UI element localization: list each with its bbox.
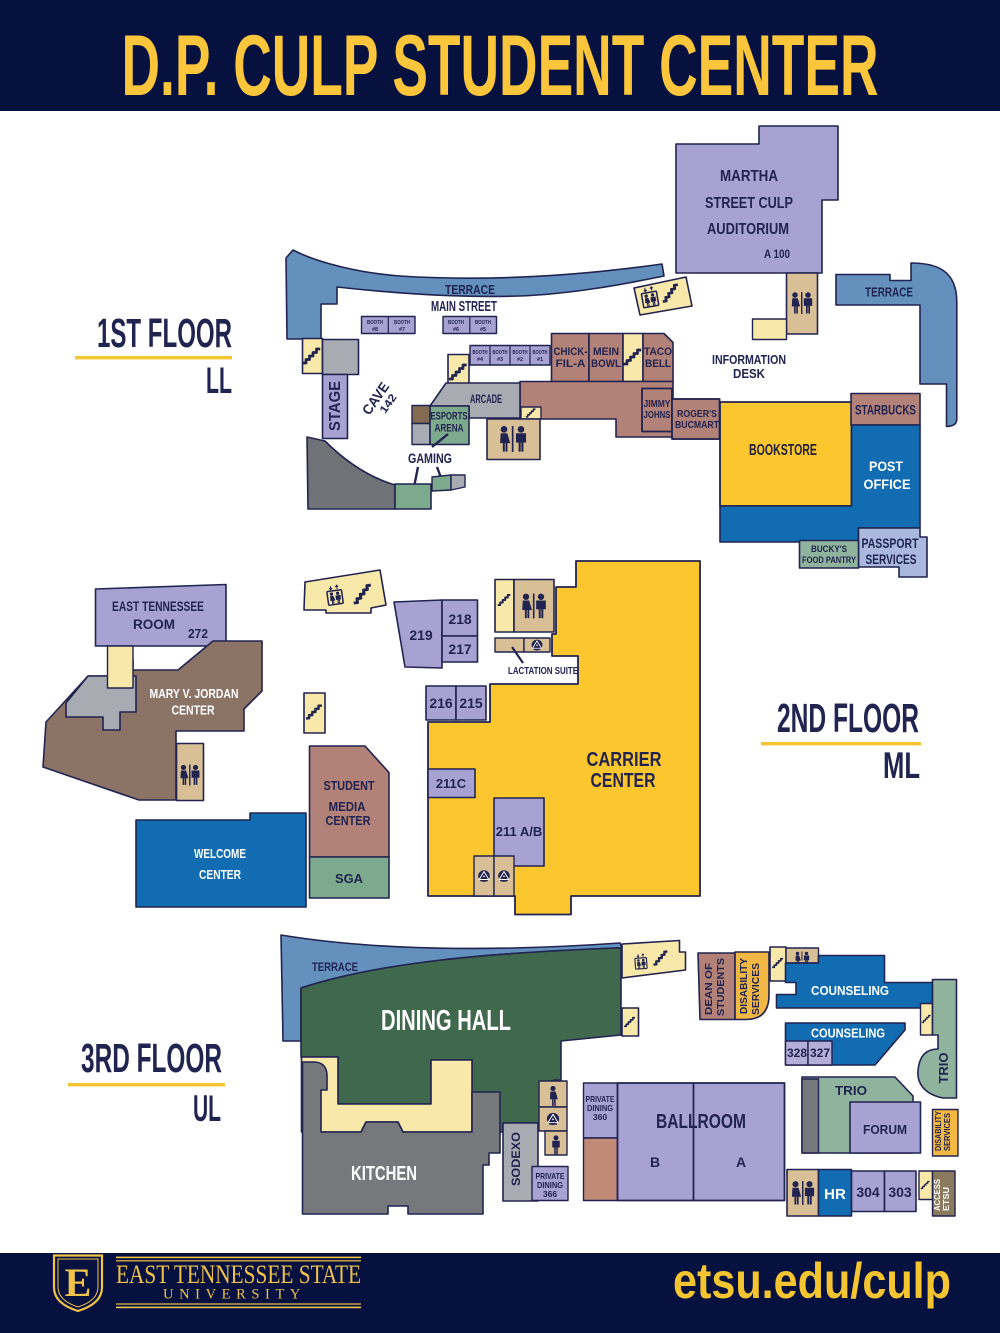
svg-text:BALLROOM: BALLROOM (656, 1111, 746, 1133)
svg-text:STAGE: STAGE (327, 381, 344, 431)
svg-text:CHICK-: CHICK- (554, 346, 588, 358)
svg-text:UL: UL (193, 1088, 221, 1129)
svg-text:EAST TENNESSEE: EAST TENNESSEE (112, 599, 204, 614)
svg-text:FOOD PANTRY: FOOD PANTRY (802, 555, 857, 566)
svg-text:CENTER: CENTER (199, 867, 241, 882)
svg-text:BOWL: BOWL (591, 358, 621, 370)
svg-text:SERVICES: SERVICES (866, 551, 917, 567)
svg-text:PASSPORT: PASSPORT (862, 535, 919, 551)
svg-text:ML: ML (883, 745, 920, 786)
svg-text:2ND FLOOR: 2ND FLOOR (777, 695, 919, 741)
svg-text:EAST TENNESSEE STATE: EAST TENNESSEE STATE (116, 1260, 361, 1289)
svg-text:LL: LL (206, 360, 232, 401)
svg-text:BUCKY'S: BUCKY'S (811, 544, 847, 555)
svg-text:TRIO: TRIO (835, 1084, 867, 1098)
svg-text:UNIVERSITY: UNIVERSITY (163, 1287, 306, 1303)
svg-text:BOOTH: BOOTH (394, 320, 410, 326)
svg-text:MAIN STREET: MAIN STREET (431, 298, 497, 315)
svg-text:211C: 211C (436, 776, 467, 791)
svg-text:COUNSELING: COUNSELING (811, 1027, 885, 1041)
svg-text:CENTER: CENTER (326, 813, 372, 828)
svg-text:SERVICES: SERVICES (942, 1113, 952, 1151)
svg-text:FORUM: FORUM (863, 1123, 907, 1137)
svg-text:217: 217 (448, 641, 472, 657)
svg-text:3RD FLOOR: 3RD FLOOR (81, 1035, 222, 1081)
svg-text:ETSU: ETSU (941, 1187, 951, 1211)
svg-text:A: A (736, 1154, 746, 1170)
svg-text:327: 327 (810, 1046, 830, 1060)
svg-text:ARCADE: ARCADE (470, 394, 502, 406)
svg-text:STUDENTS: STUDENTS (715, 958, 727, 1016)
svg-text:328: 328 (787, 1046, 807, 1060)
svg-text:MARY V. JORDAN: MARY V. JORDAN (150, 686, 239, 701)
svg-text:TERRACE: TERRACE (312, 960, 358, 974)
svg-text:ARENA: ARENA (435, 423, 464, 435)
svg-text:WELCOME: WELCOME (194, 846, 246, 861)
svg-text:216: 216 (429, 695, 453, 711)
svg-text:OFFICE: OFFICE (864, 476, 911, 492)
svg-text:TACO: TACO (644, 346, 672, 358)
svg-text:SERVICES: SERVICES (750, 963, 762, 1015)
svg-text:STREET CULP: STREET CULP (705, 195, 793, 212)
svg-text:ROOM: ROOM (133, 617, 175, 632)
svg-text:218: 218 (448, 611, 472, 627)
svg-text:BOOTH: BOOTH (367, 320, 383, 326)
svg-text:etsu.edu/culp: etsu.edu/culp (673, 1253, 951, 1309)
svg-text:BOOTH: BOOTH (533, 350, 548, 356)
svg-text:HR: HR (824, 1186, 846, 1203)
svg-text:COUNSELING: COUNSELING (811, 984, 889, 998)
svg-text:BOOTH: BOOTH (473, 350, 488, 356)
svg-text:CENTER: CENTER (591, 770, 656, 792)
svg-text:#3: #3 (497, 357, 503, 363)
svg-text:303: 303 (888, 1184, 912, 1200)
svg-text:SODEXO: SODEXO (509, 1132, 523, 1186)
svg-text:E: E (65, 1260, 92, 1305)
svg-text:#5: #5 (480, 327, 486, 333)
svg-text:TERRACE: TERRACE (445, 282, 495, 297)
svg-text:A 100: A 100 (764, 247, 790, 261)
svg-text:304: 304 (856, 1184, 880, 1200)
svg-text:MARTHA: MARTHA (720, 168, 778, 185)
svg-text:DINING HALL: DINING HALL (381, 1005, 511, 1037)
svg-text:BOOTH: BOOTH (448, 320, 464, 326)
svg-text:B: B (650, 1154, 660, 1170)
svg-text:#8: #8 (372, 327, 378, 333)
svg-text:DEAN OF: DEAN OF (703, 962, 715, 1015)
svg-text:#2: #2 (517, 357, 523, 363)
svg-text:BELL: BELL (645, 358, 671, 370)
svg-text:KITCHEN: KITCHEN (351, 1163, 417, 1185)
svg-text:360: 360 (593, 1112, 607, 1122)
svg-text:BOOKSTORE: BOOKSTORE (749, 442, 817, 459)
svg-text:BOOTH: BOOTH (475, 320, 491, 326)
svg-text:#1: #1 (537, 357, 543, 363)
svg-text:272: 272 (188, 626, 208, 641)
svg-text:D.P. CULP STUDENT CENTER: D.P. CULP STUDENT CENTER (122, 18, 879, 114)
svg-text:BUCMART: BUCMART (675, 419, 719, 431)
svg-text:#7: #7 (399, 327, 405, 333)
svg-text:ESPORTS: ESPORTS (431, 411, 468, 423)
svg-text:#6: #6 (453, 327, 459, 333)
svg-text:DISABILITY: DISABILITY (738, 958, 750, 1014)
svg-text:219: 219 (409, 627, 433, 643)
svg-text:FIL-A: FIL-A (556, 358, 586, 370)
svg-text:JOHNS: JOHNS (644, 409, 671, 421)
svg-text:INFORMATION: INFORMATION (712, 352, 786, 367)
svg-text:211 A/B: 211 A/B (496, 824, 543, 839)
svg-text:TRIO: TRIO (937, 1052, 951, 1083)
svg-text:MEDIA: MEDIA (329, 799, 367, 814)
svg-text:BOOTH: BOOTH (513, 350, 528, 356)
svg-text:GAMING: GAMING (408, 450, 452, 466)
svg-text:MEIN: MEIN (593, 346, 619, 358)
svg-text:POST: POST (869, 458, 903, 474)
svg-text:1ST FLOOR: 1ST FLOOR (97, 310, 232, 356)
svg-text:215: 215 (459, 695, 483, 711)
svg-text:STARBUCKS: STARBUCKS (855, 402, 916, 418)
svg-text:LACTATION SUITE: LACTATION SUITE (508, 665, 578, 677)
svg-text:AUDITORIUM: AUDITORIUM (707, 221, 789, 238)
svg-text:BOOTH: BOOTH (493, 350, 508, 356)
svg-text:CARRIER: CARRIER (587, 749, 662, 771)
svg-text:366: 366 (543, 1189, 557, 1199)
svg-text:CENTER: CENTER (172, 703, 215, 718)
svg-text:SGA: SGA (335, 871, 364, 886)
svg-text:TERRACE: TERRACE (865, 285, 913, 300)
svg-text:#4: #4 (477, 357, 483, 363)
svg-text:DESK: DESK (733, 366, 766, 381)
svg-text:STUDENT: STUDENT (324, 778, 375, 793)
